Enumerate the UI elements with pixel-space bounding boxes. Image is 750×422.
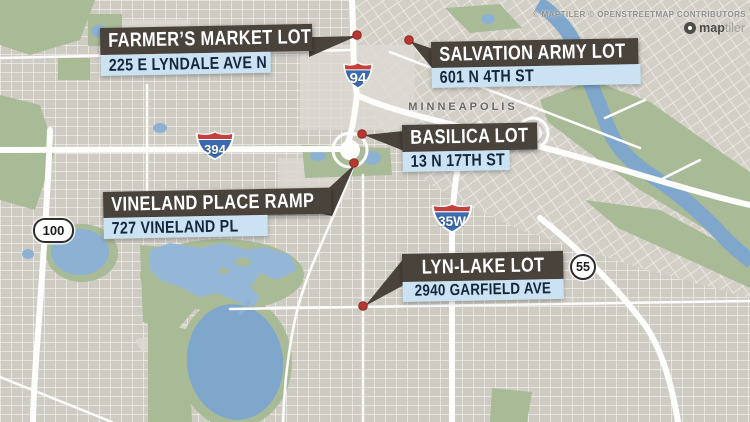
marker-salvation-army bbox=[405, 36, 414, 45]
lot-title-box: BASILICA LOT bbox=[402, 122, 537, 152]
shield-number: 55 bbox=[576, 260, 590, 274]
lot-address: 2940 GARFIELD AVE bbox=[415, 280, 552, 301]
maptiler-pin-icon bbox=[684, 22, 696, 34]
shield-number: 35W bbox=[430, 212, 474, 231]
state-highway-100-shield: 100 bbox=[33, 218, 74, 243]
lot-address-box: 13 N 17TH ST bbox=[403, 150, 510, 172]
label-lyn-lake-lot: LYN-LAKE LOT 2940 GARFIELD AVE bbox=[402, 251, 564, 302]
interstate-94-shield: 94 bbox=[342, 61, 374, 90]
pointer-lyn-lake bbox=[365, 258, 404, 306]
city-label-minneapolis: MINNEAPOLIS bbox=[398, 101, 528, 113]
lot-address-box: 2940 GARFIELD AVE bbox=[403, 279, 564, 302]
lot-name: SALVATION ARMY LOT bbox=[439, 40, 626, 67]
label-vineland-place-ramp: VINELAND PLACE RAMP 727 VINELAND PL bbox=[103, 188, 332, 239]
lot-title-box: SALVATION ARMY LOT bbox=[431, 38, 638, 68]
lot-address-box: 601 N 4TH ST bbox=[431, 64, 640, 88]
map-attribution: © MAPTILER © OPENSTREETMAP CONTRIBUTORS bbox=[533, 10, 746, 19]
label-farmers-market-lot: FARMER’S MARKET LOT 225 E LYNDALE AVE N bbox=[100, 24, 313, 76]
shield-number: 100 bbox=[43, 223, 65, 238]
lot-name: VINELAND PLACE RAMP bbox=[111, 189, 314, 216]
shield-number: 394 bbox=[194, 140, 236, 159]
lot-address: 601 N 4TH ST bbox=[439, 66, 534, 88]
interstate-394-shield: 394 bbox=[194, 130, 236, 161]
shield-number: 94 bbox=[342, 70, 374, 87]
marker-vineland bbox=[350, 159, 359, 168]
maptiler-logo-bold: map bbox=[699, 21, 725, 35]
maptiler-logo-light: tiler bbox=[725, 21, 745, 35]
interstate-35w-shield: 35W bbox=[430, 202, 474, 234]
pointer-salvation-army bbox=[410, 41, 433, 69]
marker-farmers-market bbox=[353, 31, 362, 40]
label-salvation-army-lot: SALVATION ARMY LOT 601 N 4TH ST bbox=[431, 38, 641, 88]
maptiler-logo: map tiler bbox=[684, 21, 745, 35]
lot-title-box: LYN-LAKE LOT bbox=[402, 251, 564, 282]
label-basilica-lot: BASILICA LOT 13 N 17TH ST bbox=[402, 122, 538, 172]
lot-title-box: FARMER’S MARKET LOT bbox=[100, 24, 312, 55]
lot-address: 13 N 17TH ST bbox=[411, 150, 506, 172]
lot-address: 727 VINELAND PL bbox=[112, 216, 239, 238]
lot-name: BASILICA LOT bbox=[410, 125, 529, 150]
lot-name: FARMER’S MARKET LOT bbox=[108, 26, 311, 53]
pointer-farmers-market bbox=[309, 36, 357, 57]
map-graphic: 94 394 35W 100 55 bbox=[0, 0, 750, 422]
lot-address-box: 727 VINELAND PL bbox=[103, 215, 267, 239]
marker-lyn-lake bbox=[359, 302, 368, 311]
lot-address-box: 225 E LYNDALE AVE N bbox=[101, 52, 271, 76]
pointer-basilica bbox=[364, 131, 404, 151]
lot-title-box: VINELAND PLACE RAMP bbox=[103, 188, 331, 218]
lot-address: 225 E LYNDALE AVE N bbox=[109, 52, 268, 75]
state-highway-55-shield: 55 bbox=[570, 254, 596, 280]
lot-name: LYN-LAKE LOT bbox=[421, 254, 544, 279]
marker-basilica bbox=[358, 130, 367, 139]
